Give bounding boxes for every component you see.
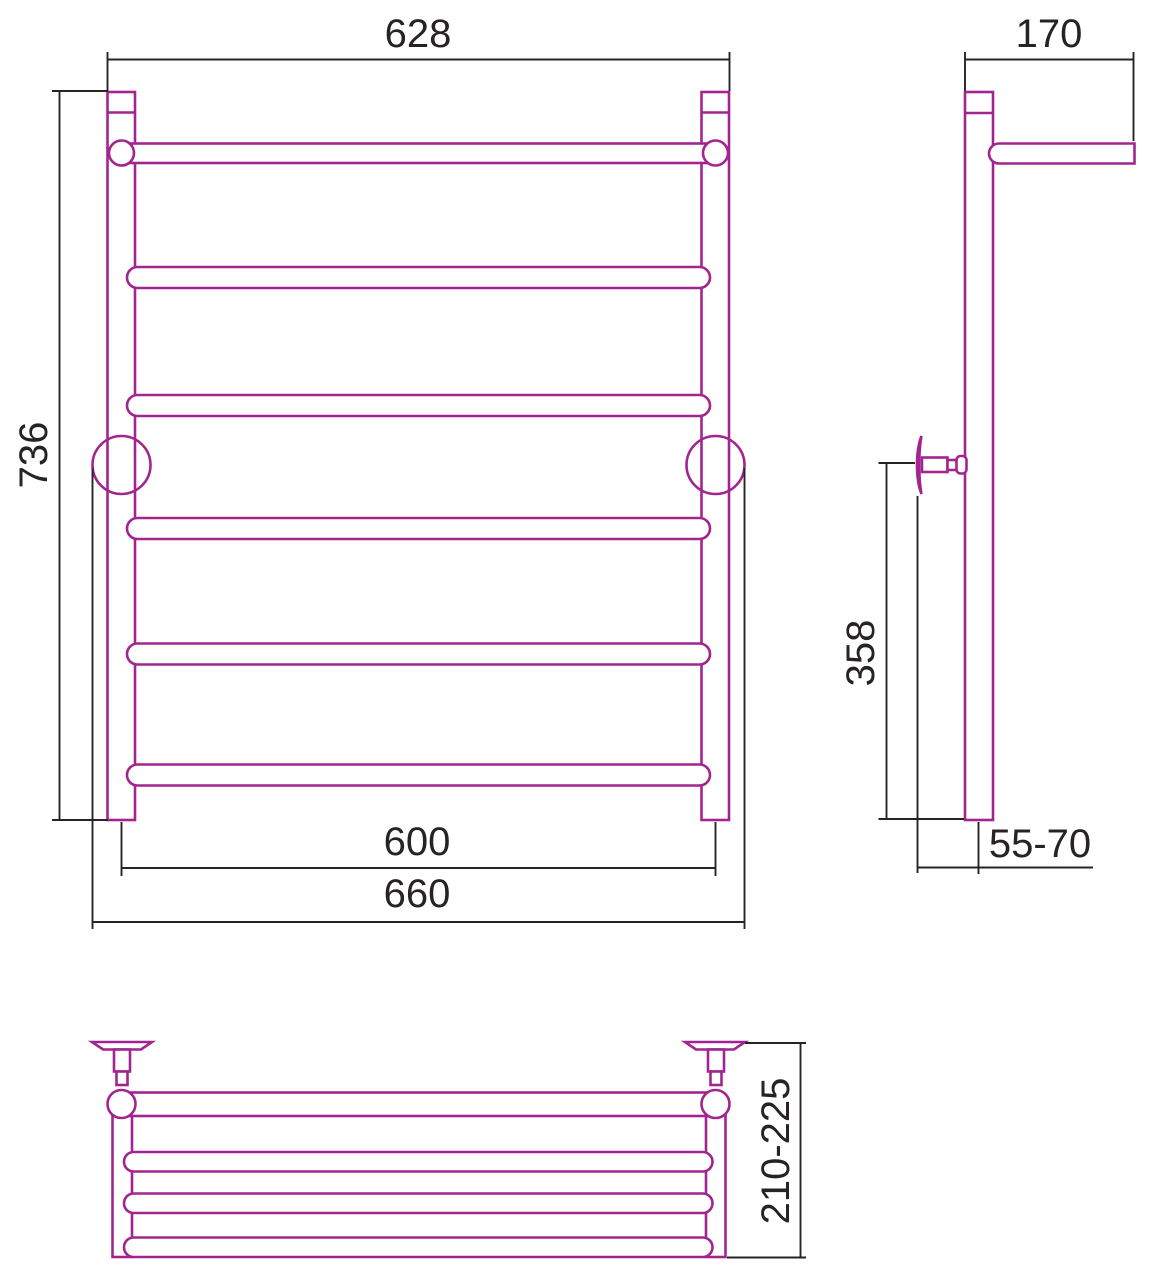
- top-shelf-rail-2: [124, 1152, 713, 1172]
- top-right-ball-joint: [702, 1090, 730, 1118]
- top-right-bracket-neck: [711, 1072, 722, 1086]
- side-post: [965, 92, 993, 820]
- top-left-ball-joint: [108, 1090, 136, 1118]
- front-rail-5: [127, 644, 710, 665]
- front-shelf-bar: [122, 144, 716, 164]
- dim-736-label: 736: [12, 422, 56, 489]
- dim-210225-label: 210-225: [754, 1078, 798, 1225]
- front-view: 628 736 600 660: [12, 12, 745, 929]
- top-right-shelf-arm: [706, 1104, 726, 1257]
- side-bracket-knob: [957, 456, 967, 474]
- top-shelf-rail-3: [124, 1194, 713, 1214]
- front-left-post: [108, 92, 136, 820]
- top-right-bracket-stem: [708, 1050, 724, 1072]
- drawing-canvas: 628 736 600 660 170: [0, 0, 1154, 1280]
- dim-5570-label: 55-70: [989, 822, 1091, 866]
- dim-358-label: 358: [839, 620, 883, 687]
- top-back-rail: [122, 1093, 716, 1117]
- top-left-bracket-stem: [114, 1050, 130, 1072]
- side-shelf-bar: [989, 144, 1135, 164]
- front-right-post: [702, 92, 730, 820]
- side-view: 170 358 55-70: [839, 12, 1135, 874]
- top-left-bracket-neck: [117, 1072, 128, 1086]
- front-rail-2: [127, 267, 710, 288]
- dim-170-label: 170: [1016, 12, 1083, 56]
- top-shelf-front-rail: [124, 1238, 713, 1258]
- front-rail-4: [127, 518, 710, 539]
- towel-rail-drawing: 628 736 600 660 170: [0, 0, 1154, 1280]
- dim-600-label: 600: [384, 820, 451, 864]
- side-bracket-stem: [922, 458, 948, 473]
- dim-628-label: 628: [385, 12, 452, 56]
- front-rail-6: [127, 765, 710, 786]
- front-right-ball-joint: [703, 141, 728, 166]
- front-rail-3: [127, 395, 710, 416]
- front-left-ball-joint: [109, 141, 134, 166]
- top-view: 210-225: [92, 1042, 806, 1258]
- dim-660-label: 660: [384, 872, 451, 916]
- top-left-shelf-arm: [113, 1104, 133, 1257]
